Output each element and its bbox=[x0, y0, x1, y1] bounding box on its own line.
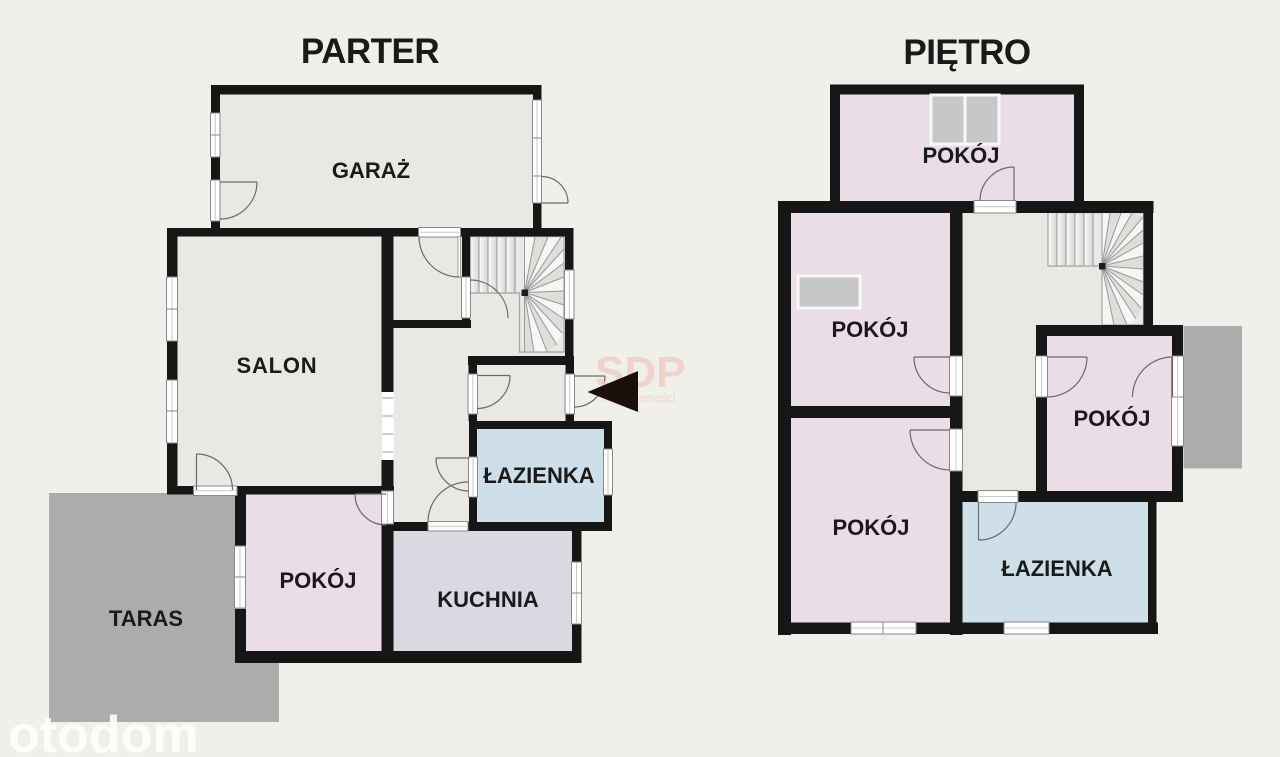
svg-text:POKÓJ: POKÓJ bbox=[279, 568, 356, 593]
svg-text:otodom: otodom bbox=[8, 706, 199, 757]
svg-text:POKÓJ: POKÓJ bbox=[831, 317, 908, 342]
svg-text:POKÓJ: POKÓJ bbox=[832, 515, 909, 540]
svg-text:PIĘTRO: PIĘTRO bbox=[903, 33, 1030, 72]
svg-text:TARAS: TARAS bbox=[109, 606, 183, 631]
svg-text:PARTER: PARTER bbox=[301, 32, 440, 71]
svg-text:KUCHNIA: KUCHNIA bbox=[437, 587, 539, 612]
svg-text:ŁAZIENKA: ŁAZIENKA bbox=[1001, 556, 1112, 581]
svg-text:POKÓJ: POKÓJ bbox=[1073, 406, 1150, 431]
svg-text:POKÓJ: POKÓJ bbox=[922, 143, 999, 168]
svg-text:GARAŻ: GARAŻ bbox=[332, 158, 410, 183]
svg-text:SALON: SALON bbox=[237, 353, 318, 378]
svg-text:ŁAZIENKA: ŁAZIENKA bbox=[483, 463, 594, 488]
